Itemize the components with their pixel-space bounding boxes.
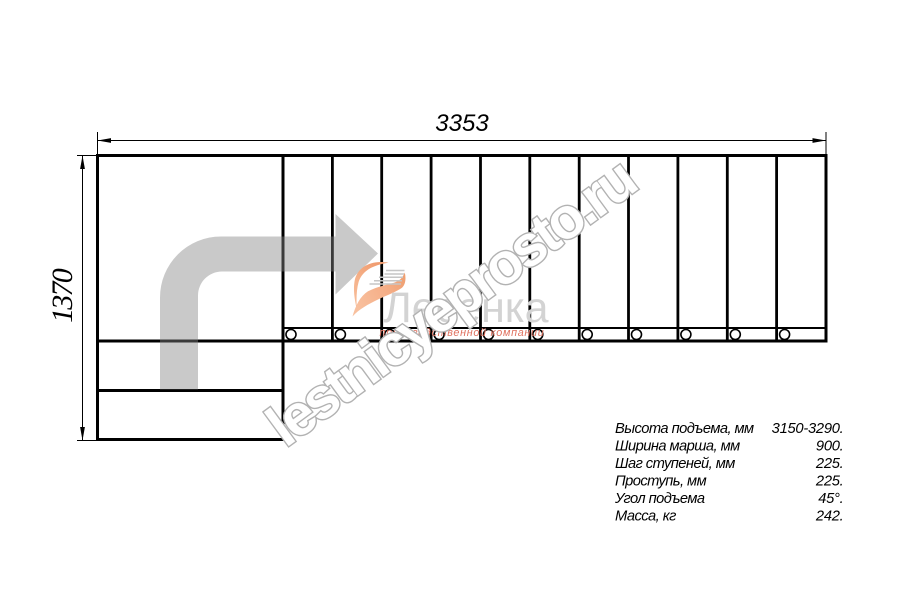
svg-text:3150-3290.: 3150-3290. [772, 421, 844, 437]
svg-text:Угол подъема: Угол подъема [614, 491, 705, 507]
svg-text:Высота подъема, мм: Высота подъема, мм [615, 421, 754, 437]
svg-text:lestnicyeprosto.ru: lestnicyeprosto.ru [255, 147, 647, 459]
svg-text:900.: 900. [816, 439, 844, 455]
svg-text:225.: 225. [815, 474, 844, 490]
svg-text:Масса, кг: Масса, кг [615, 509, 676, 525]
svg-text:242.: 242. [815, 509, 844, 525]
svg-text:45°.: 45°. [818, 491, 843, 507]
svg-text:3353: 3353 [435, 110, 489, 137]
svg-text:1370: 1370 [46, 268, 79, 323]
svg-text:Проступь, мм: Проступь, мм [615, 474, 707, 490]
svg-text:Шаг ступеней, мм: Шаг ступеней, мм [615, 456, 735, 472]
svg-text:Ширина марша, мм: Ширина марша, мм [615, 439, 740, 455]
svg-text:225.: 225. [815, 456, 844, 472]
